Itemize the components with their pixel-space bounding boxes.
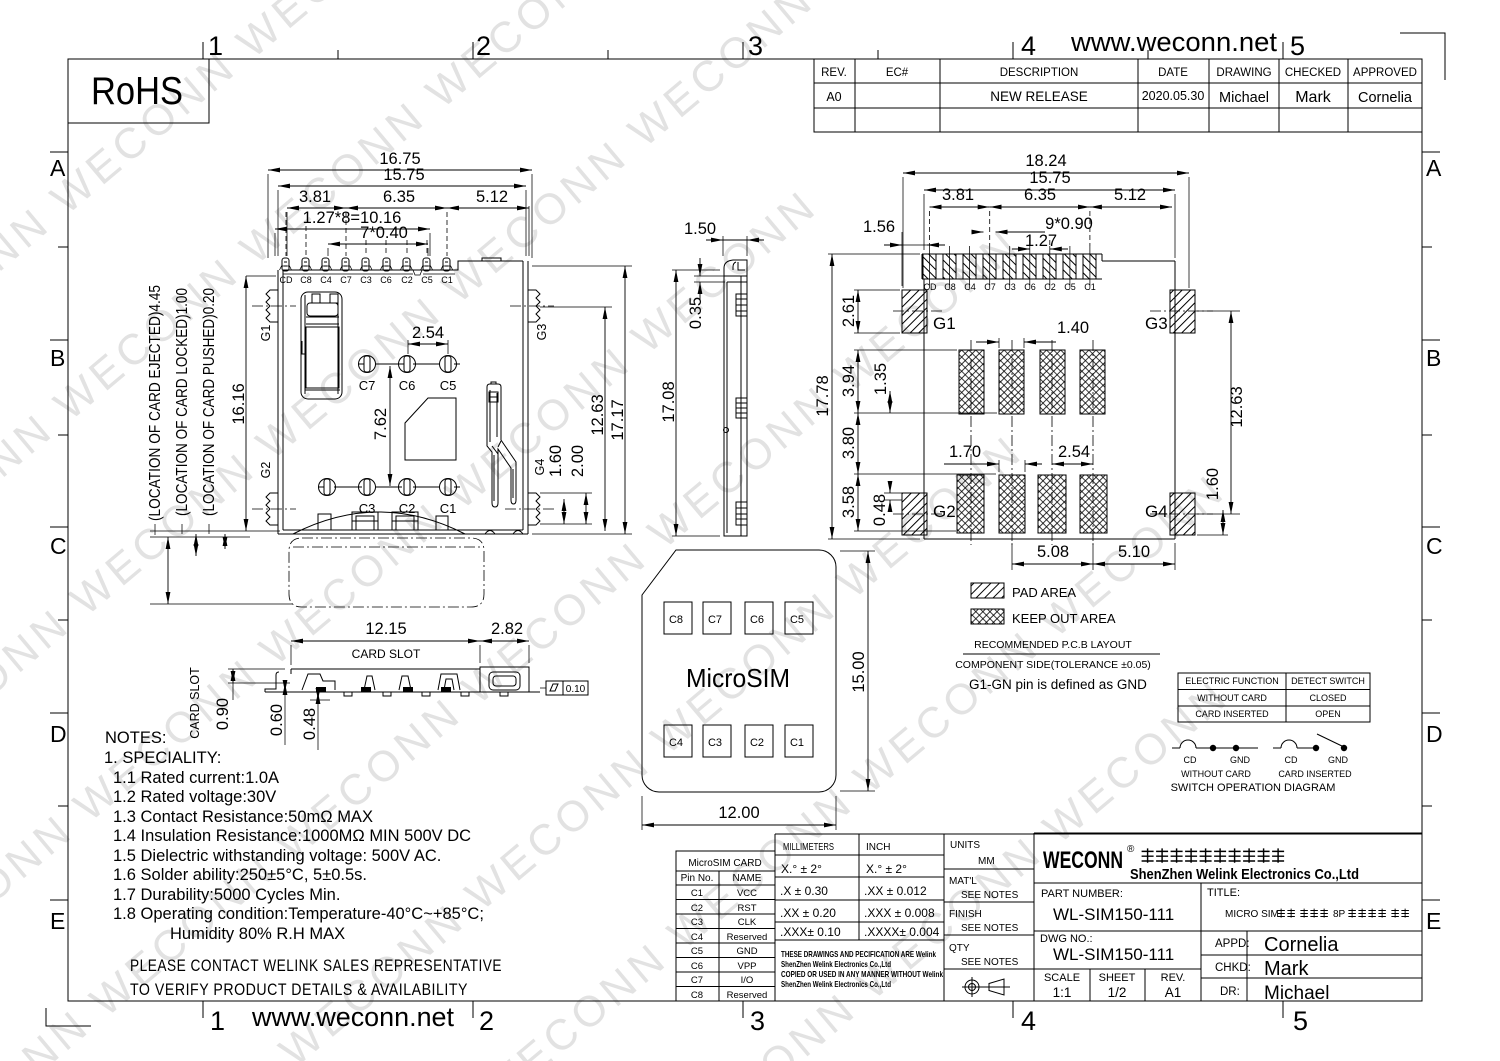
svg-text:12.63: 12.63 xyxy=(589,394,607,435)
svg-text:C1: C1 xyxy=(440,501,457,516)
svg-text:GND: GND xyxy=(1230,755,1251,765)
svg-text:C7: C7 xyxy=(359,378,376,393)
svg-text:1: 1 xyxy=(210,1006,225,1036)
svg-text:TITLE:: TITLE: xyxy=(1207,887,1240,899)
svg-text:1: 1 xyxy=(208,31,223,61)
svg-text:PART NUMBER:: PART NUMBER: xyxy=(1041,888,1123,900)
svg-text:3.81: 3.81 xyxy=(299,188,331,206)
svg-text:X.° ± 2°: X.° ± 2° xyxy=(866,862,907,876)
svg-text:G2: G2 xyxy=(933,502,956,521)
svg-text:QTY: QTY xyxy=(949,943,970,954)
svg-text:E: E xyxy=(50,908,65,934)
svg-text:RECOMMENDED P.C.B LAYOUT: RECOMMENDED P.C.B LAYOUT xyxy=(974,639,1132,651)
svg-text:5.08: 5.08 xyxy=(1037,543,1069,561)
svg-text:DWG NO.:: DWG NO.: xyxy=(1040,933,1093,945)
svg-text:MICRO SIM: MICRO SIM xyxy=(1225,909,1279,920)
svg-text:MicroSIM CARD: MicroSIM CARD xyxy=(688,858,761,869)
svg-text:2.00: 2.00 xyxy=(569,445,587,477)
svg-text:C1: C1 xyxy=(691,888,703,899)
svg-text:KEEP OUT AREA: KEEP OUT AREA xyxy=(1012,611,1116,626)
svg-text:G2: G2 xyxy=(259,462,273,479)
svg-text:WL-SIM150-111: WL-SIM150-111 xyxy=(1053,905,1174,924)
svg-text:COPIED OR USED IN ANY MANNER W: COPIED OR USED IN ANY MANNER WITHOUT Wel… xyxy=(781,970,943,979)
svg-text:1.56: 1.56 xyxy=(863,218,895,236)
svg-text:X.° ± 2°: X.° ± 2° xyxy=(781,862,822,876)
svg-text:Mark: Mark xyxy=(1295,89,1332,106)
svg-text:1.70: 1.70 xyxy=(949,443,981,461)
svg-text:C5: C5 xyxy=(440,378,457,393)
svg-text:5: 5 xyxy=(1293,1006,1308,1036)
svg-text:0.90: 0.90 xyxy=(214,698,232,730)
svg-text:Cornelia: Cornelia xyxy=(1264,934,1339,956)
svg-text:1.3 Contact Resistance:50mΩ MA: 1.3 Contact Resistance:50mΩ MAX xyxy=(113,808,373,826)
svg-text:SEE NOTES: SEE NOTES xyxy=(961,957,1019,968)
svg-text:C3: C3 xyxy=(691,917,703,928)
svg-text:COMPONENT SIDE(TOLERANCE ±0.05: COMPONENT SIDE(TOLERANCE ±0.05) xyxy=(955,659,1151,671)
svg-text:1.60: 1.60 xyxy=(1204,468,1222,500)
svg-text:Michael: Michael xyxy=(1219,90,1269,106)
svg-text:APPD:: APPD: xyxy=(1215,938,1250,950)
svg-text:RST: RST xyxy=(738,903,757,914)
svg-text:C1: C1 xyxy=(790,737,804,749)
svg-text:MILLIMETERS: MILLIMETERS xyxy=(783,842,834,853)
svg-text:Humidity 80% R.H MAX: Humidity 80% R.H MAX xyxy=(170,925,345,943)
svg-text:2: 2 xyxy=(476,31,491,61)
svg-text:E: E xyxy=(1426,908,1441,934)
svg-text:1.8 Operating condition:Temper: 1.8 Operating condition:Temperature-40°C… xyxy=(113,905,484,923)
svg-text:5.10: 5.10 xyxy=(1118,543,1150,561)
svg-text:8P: 8P xyxy=(1333,909,1346,920)
svg-text:ELECTRIC FUNCTION: ELECTRIC FUNCTION xyxy=(1185,676,1279,686)
svg-text:CLK: CLK xyxy=(738,917,757,928)
svg-text:2.54: 2.54 xyxy=(1058,443,1090,461)
svg-text:CHECKED: CHECKED xyxy=(1285,67,1341,79)
svg-text:C3: C3 xyxy=(360,275,372,285)
svg-text:G3: G3 xyxy=(1145,314,1168,333)
svg-text:RoHS: RoHS xyxy=(91,70,183,113)
svg-text:CD: CD xyxy=(280,275,293,285)
svg-text:1.5 Dielectric withstanding vo: 1.5 Dielectric withstanding voltage: 500… xyxy=(113,847,441,865)
svg-text:C8: C8 xyxy=(669,614,683,626)
svg-text:C8: C8 xyxy=(944,282,956,292)
svg-text:1.35: 1.35 xyxy=(872,363,890,395)
svg-text:C2: C2 xyxy=(401,275,413,285)
svg-text:CARD SLOT: CARD SLOT xyxy=(188,667,202,739)
svg-text:.XXXX± 0.004: .XXXX± 0.004 xyxy=(864,925,940,939)
svg-text:3.80: 3.80 xyxy=(840,427,858,459)
svg-text:A: A xyxy=(50,155,66,181)
svg-text:15.75: 15.75 xyxy=(1029,169,1070,187)
svg-text:3: 3 xyxy=(748,31,763,61)
svg-text:.XX ± 0.20: .XX ± 0.20 xyxy=(780,906,836,920)
svg-text:(LOCATION OF CARD EJECTED)4.45: (LOCATION OF CARD EJECTED)4.45 xyxy=(147,285,164,521)
svg-text:®: ® xyxy=(1127,844,1135,855)
svg-text:16.16: 16.16 xyxy=(230,383,248,424)
svg-text:WITHOUT CARD: WITHOUT CARD xyxy=(1181,769,1251,779)
svg-text:0.10: 0.10 xyxy=(566,684,586,695)
svg-text:C4: C4 xyxy=(669,737,683,749)
svg-text:C3: C3 xyxy=(359,501,376,516)
svg-text:(LOCATION OF CARD LOCKED)1.00: (LOCATION OF CARD LOCKED)1.00 xyxy=(174,288,191,516)
svg-text:A0: A0 xyxy=(826,90,841,104)
svg-text:DETECT SWITCH: DETECT SWITCH xyxy=(1291,676,1365,686)
svg-text:SWITCH OPERATION DIAGRAM: SWITCH OPERATION DIAGRAM xyxy=(1171,782,1336,794)
svg-text:Reserved: Reserved xyxy=(727,990,768,1001)
svg-text:CARD INSERTED: CARD INSERTED xyxy=(1278,769,1352,779)
svg-text:C7: C7 xyxy=(691,975,703,986)
svg-text:2.54: 2.54 xyxy=(412,324,444,342)
svg-text:B: B xyxy=(50,345,65,371)
svg-text:GND: GND xyxy=(736,946,757,957)
svg-text:DRAWING: DRAWING xyxy=(1216,67,1271,79)
svg-text:12.00: 12.00 xyxy=(718,804,759,822)
svg-text:C5: C5 xyxy=(691,946,703,957)
svg-text:APPROVED: APPROVED xyxy=(1353,67,1417,79)
svg-text:C4: C4 xyxy=(691,932,703,943)
svg-text:WL-SIM150-111: WL-SIM150-111 xyxy=(1053,945,1174,964)
svg-text:FINISH: FINISH xyxy=(949,909,982,920)
svg-text:C4: C4 xyxy=(964,282,976,292)
svg-text:.XX ± 0.012: .XX ± 0.012 xyxy=(864,884,927,898)
svg-text:CLOSED: CLOSED xyxy=(1309,693,1347,703)
svg-text:SCALE: SCALE xyxy=(1044,972,1080,984)
svg-text:G4: G4 xyxy=(533,459,547,476)
svg-text:Cornelia: Cornelia xyxy=(1358,90,1413,106)
svg-text:C4: C4 xyxy=(320,275,332,285)
svg-text:OPEN: OPEN xyxy=(1315,709,1341,719)
svg-text:2020.05.30: 2020.05.30 xyxy=(1142,89,1205,103)
svg-text:Mark: Mark xyxy=(1264,958,1309,980)
svg-text:1.4 Insulation Resistance:1000: 1.4 Insulation Resistance:1000MΩ MIN 500… xyxy=(113,827,471,845)
svg-text:G1-GN pin is defined as GND: G1-GN pin is defined as GND xyxy=(969,677,1147,692)
svg-text:TO VERIFY PRODUCT DETAILS & AV: TO VERIFY PRODUCT DETAILS & AVAILABILITY xyxy=(130,981,468,999)
svg-text:C5: C5 xyxy=(790,614,804,626)
svg-text:SEE NOTES: SEE NOTES xyxy=(961,923,1019,934)
svg-text:5: 5 xyxy=(1290,31,1305,61)
svg-text:NAME: NAME xyxy=(733,873,762,884)
svg-text:C: C xyxy=(50,533,67,559)
svg-text:1/2: 1/2 xyxy=(1108,985,1127,1000)
svg-text:6.35: 6.35 xyxy=(383,188,415,206)
svg-text:15.00: 15.00 xyxy=(850,651,868,692)
svg-text:NEW RELEASE: NEW RELEASE xyxy=(990,89,1088,104)
svg-text:D: D xyxy=(50,721,67,747)
svg-text:G4: G4 xyxy=(1145,502,1168,521)
svg-text:G1: G1 xyxy=(933,314,956,333)
svg-text:REV.: REV. xyxy=(1161,972,1186,984)
svg-text:PAD AREA: PAD AREA xyxy=(1012,585,1076,600)
svg-text:ShenZhen Welink Electronics Co: ShenZhen Welink Electronics Co.,Ltd xyxy=(781,960,891,969)
svg-text:www.weconn.net: www.weconn.net xyxy=(1070,27,1278,57)
svg-text:15.75: 15.75 xyxy=(383,166,424,184)
svg-text:C7: C7 xyxy=(340,275,352,285)
svg-text:REV.: REV. xyxy=(821,67,847,79)
svg-text:PLEASE CONTACT WELINK SALES RE: PLEASE CONTACT WELINK SALES REPRESENTATI… xyxy=(130,957,502,975)
svg-text:GND: GND xyxy=(1328,755,1349,765)
svg-text:1.50: 1.50 xyxy=(684,220,716,238)
svg-text:G3: G3 xyxy=(535,324,549,341)
svg-text:DATE: DATE xyxy=(1158,67,1188,79)
svg-text:DESCRIPTION: DESCRIPTION xyxy=(1000,67,1079,79)
svg-text:4: 4 xyxy=(1021,31,1036,61)
svg-text:7*0.40: 7*0.40 xyxy=(360,224,408,242)
svg-text:18.24: 18.24 xyxy=(1025,152,1066,170)
svg-text:CD: CD xyxy=(1285,755,1298,765)
svg-text:WITHOUT CARD: WITHOUT CARD xyxy=(1197,693,1267,703)
svg-text:17.08: 17.08 xyxy=(660,381,678,422)
svg-text:2: 2 xyxy=(479,1006,494,1036)
svg-text:B: B xyxy=(1426,345,1441,371)
svg-text:C6: C6 xyxy=(380,275,392,285)
svg-text:(LOCATION OF CARD PUSHED)0.20: (LOCATION OF CARD PUSHED)0.20 xyxy=(201,288,218,516)
svg-text:EC#: EC# xyxy=(886,67,909,79)
svg-text:VPP: VPP xyxy=(737,961,756,972)
svg-text:C3: C3 xyxy=(708,737,722,749)
svg-text:3: 3 xyxy=(750,1006,765,1036)
svg-text:CHKD:: CHKD: xyxy=(1215,962,1251,974)
svg-text:SHEET: SHEET xyxy=(1099,972,1136,984)
svg-text:C1: C1 xyxy=(441,275,453,285)
svg-text:0.60: 0.60 xyxy=(268,704,286,736)
svg-text:UNITS: UNITS xyxy=(950,840,980,851)
svg-text:1.2 Rated voltage:30V: 1.2 Rated voltage:30V xyxy=(113,788,276,806)
svg-text:MAT'L: MAT'L xyxy=(949,876,977,887)
svg-text:Michael: Michael xyxy=(1264,983,1329,1004)
svg-text:www.weconn.net: www.weconn.net xyxy=(251,1002,454,1032)
svg-text:0.48: 0.48 xyxy=(871,494,889,526)
svg-text:A1: A1 xyxy=(1165,985,1182,1000)
svg-text:C2: C2 xyxy=(691,903,703,914)
svg-text:ShenZhen Welink Electronics Co: ShenZhen Welink Electronics Co.,Ltd xyxy=(781,980,891,989)
svg-text:C2: C2 xyxy=(750,737,764,749)
svg-text:6.35: 6.35 xyxy=(1024,186,1056,204)
svg-text:G1: G1 xyxy=(259,325,273,342)
svg-text:1.40: 1.40 xyxy=(1057,319,1089,337)
svg-text:MicroSIM: MicroSIM xyxy=(686,663,790,693)
svg-text:C5: C5 xyxy=(421,275,433,285)
svg-text:I/O: I/O xyxy=(741,975,754,986)
svg-text:DR:: DR: xyxy=(1220,986,1240,998)
svg-text:3.81: 3.81 xyxy=(942,186,974,204)
svg-text:2.61: 2.61 xyxy=(840,295,858,327)
svg-text:THESE DRAWINGS AND PECIFICATIO: THESE DRAWINGS AND PECIFICATION ARE Weli… xyxy=(781,950,936,959)
svg-text:1.6 Solder ability:250±5°C, 5: 1.6 Solder ability:250±5°C, 5±0.5s. xyxy=(113,866,367,884)
svg-text:C8: C8 xyxy=(691,990,703,1001)
svg-text:C8: C8 xyxy=(300,275,312,285)
svg-text:2.82: 2.82 xyxy=(491,620,523,638)
svg-text:0.48: 0.48 xyxy=(301,708,319,740)
svg-text:WECONN: WECONN xyxy=(1043,847,1123,874)
svg-text:4: 4 xyxy=(1021,1006,1036,1036)
svg-text:Pin No.: Pin No. xyxy=(681,873,714,884)
svg-text:C6: C6 xyxy=(750,614,764,626)
svg-text:MM: MM xyxy=(978,856,995,867)
svg-text:CD: CD xyxy=(1184,755,1197,765)
svg-text:3.94: 3.94 xyxy=(840,365,858,397)
svg-text:.XXX± 0.10: .XXX± 0.10 xyxy=(780,925,841,939)
svg-text:C: C xyxy=(1426,533,1443,559)
svg-text:.X ± 0.30: .X ± 0.30 xyxy=(780,884,828,898)
svg-text:17.17: 17.17 xyxy=(609,399,627,440)
svg-text:1.27: 1.27 xyxy=(1025,232,1057,250)
svg-text:C7: C7 xyxy=(708,614,722,626)
svg-text:NOTES:: NOTES: xyxy=(105,729,166,747)
svg-text:1.7 Durability:5000 Cycles Min: 1.7 Durability:5000 Cycles Min. xyxy=(113,886,340,904)
svg-text:9*0.90: 9*0.90 xyxy=(1045,215,1093,233)
svg-text:12.15: 12.15 xyxy=(365,620,406,638)
svg-text:1.60: 1.60 xyxy=(547,445,565,477)
svg-text:1. SPECIALITY:: 1. SPECIALITY: xyxy=(104,749,221,767)
svg-text:SEE NOTES: SEE NOTES xyxy=(961,890,1019,901)
svg-text:5.12: 5.12 xyxy=(1114,186,1146,204)
svg-text:C6: C6 xyxy=(399,378,416,393)
svg-text:Reserved: Reserved xyxy=(727,932,768,943)
svg-text:C6: C6 xyxy=(691,961,703,972)
svg-text:17.78: 17.78 xyxy=(814,375,832,416)
svg-text:12.63: 12.63 xyxy=(1228,386,1246,427)
svg-text:VCC: VCC xyxy=(737,888,757,899)
svg-text:0.35: 0.35 xyxy=(687,297,705,329)
svg-text:5.12: 5.12 xyxy=(476,188,508,206)
svg-text:3.58: 3.58 xyxy=(840,486,858,518)
svg-text:CARD INSERTED: CARD INSERTED xyxy=(1195,709,1269,719)
svg-text:CARD SLOT: CARD SLOT xyxy=(352,647,421,661)
svg-text:A: A xyxy=(1426,155,1442,181)
svg-text:ShenZhen Welink Electronics Co: ShenZhen Welink Electronics Co.,Ltd xyxy=(1130,866,1359,883)
svg-text:7.62: 7.62 xyxy=(372,408,390,440)
svg-text:INCH: INCH xyxy=(866,842,890,853)
svg-text:.XXX ± 0.008: .XXX ± 0.008 xyxy=(864,906,935,920)
svg-text:1.1 Rated current:1.0A: 1.1 Rated current:1.0A xyxy=(113,769,279,787)
svg-text:1:1: 1:1 xyxy=(1053,985,1072,1000)
svg-text:D: D xyxy=(1426,721,1443,747)
